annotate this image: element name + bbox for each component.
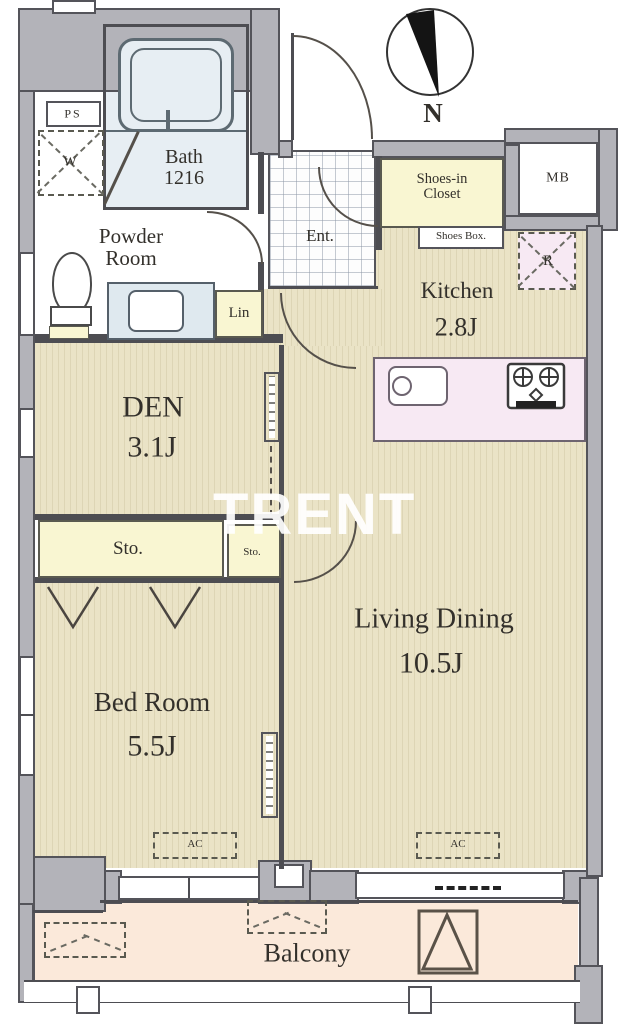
wall-segment xyxy=(33,856,106,912)
stove-icon xyxy=(506,362,568,414)
wall-line xyxy=(258,152,264,214)
balcony-edge-line xyxy=(33,910,103,913)
toilet-tank xyxy=(50,306,92,326)
powder-room-label: Powder Room xyxy=(99,225,163,269)
bathtub-inner xyxy=(130,48,222,122)
powder-line1: Powder xyxy=(99,224,163,248)
powder-room-door-arc xyxy=(207,211,263,264)
powder-line2: Room xyxy=(105,246,156,270)
bath-divider-line xyxy=(106,130,246,132)
bath-faucet-icon xyxy=(166,110,170,130)
living-size-label: 10.5J xyxy=(399,647,463,679)
bath-size: 1216 xyxy=(164,167,204,189)
kitchen-name-label: Kitchen xyxy=(421,279,494,303)
storage-large-label: Sto. xyxy=(113,539,143,559)
washer-label: W xyxy=(63,156,76,171)
bath-name: Bath xyxy=(165,146,203,168)
shoes-in-closet-label: Shoes-in Closet xyxy=(417,172,468,202)
bedroom-side-window xyxy=(19,656,35,776)
den-name-label: DEN xyxy=(122,391,184,423)
wall-segment xyxy=(598,128,618,231)
zigzag-line xyxy=(253,912,289,928)
rail-post xyxy=(76,986,100,1014)
wall-segment xyxy=(309,870,359,904)
wall-notch xyxy=(52,0,96,14)
meter-box-label: MB xyxy=(546,172,570,187)
den-size-label: 3.1J xyxy=(127,431,176,463)
window-divider xyxy=(20,714,34,716)
entrance-step-line xyxy=(268,286,378,289)
den-window xyxy=(19,408,35,458)
pipe-space-label: PS xyxy=(64,108,81,121)
living-name-label: Living Dining xyxy=(354,604,513,633)
wall-segment xyxy=(586,225,603,877)
zigzag-line xyxy=(83,934,121,951)
storage-small-label: Sto. xyxy=(243,547,260,559)
powder-window xyxy=(19,252,35,336)
evacuation-hatch-icon xyxy=(416,908,480,978)
compass-north-label: N xyxy=(423,99,443,127)
bedroom-sliding-door xyxy=(261,732,278,818)
den-sliding-door xyxy=(264,372,280,442)
washbasin-bowl xyxy=(128,290,184,332)
balcony-label: Balcony xyxy=(264,939,351,966)
wall-segment xyxy=(250,8,280,155)
toilet-icon xyxy=(52,252,92,314)
bedroom-name-label: Bed Room xyxy=(94,688,210,716)
entrance-label: Ent. xyxy=(306,227,334,245)
kitchen-size-label: 2.8J xyxy=(435,313,478,340)
floor-plan: N PS W Bath 1216 Powder Room Lin Ent. Sh… xyxy=(0,0,618,1024)
window-divider xyxy=(188,878,190,898)
entrance-door-arc xyxy=(293,35,373,139)
shoes-box-label: Shoes Box. xyxy=(436,231,486,243)
toilet-mat xyxy=(49,326,89,339)
wall-segment xyxy=(372,140,506,158)
ac-living-label: AC xyxy=(450,839,465,851)
balcony-edge-line xyxy=(100,900,578,903)
window-dash-detail xyxy=(435,886,501,892)
wall-segment xyxy=(278,140,293,158)
zigzag-line xyxy=(284,912,320,928)
sic-line2: Closet xyxy=(423,186,460,202)
bath-label: Bath 1216 xyxy=(164,147,204,189)
ac-bedroom-label: AC xyxy=(187,839,202,851)
rail-post xyxy=(408,986,432,1014)
watermark: TRENT xyxy=(213,481,416,548)
zigzag-line xyxy=(50,935,88,952)
hanger-pipe-icon xyxy=(40,583,210,633)
balcony-rail xyxy=(24,982,580,1002)
sic-line1: Shoes-in xyxy=(417,171,468,187)
linen-label: Lin xyxy=(229,306,250,322)
balcony-equipment-box xyxy=(247,900,327,934)
kitchen-faucet-icon xyxy=(392,376,412,396)
compass-icon xyxy=(384,6,480,102)
refrigerator-label: R xyxy=(543,254,553,270)
balcony-equipment-box xyxy=(44,922,126,958)
bedroom-size-label: 5.5J xyxy=(127,730,176,762)
